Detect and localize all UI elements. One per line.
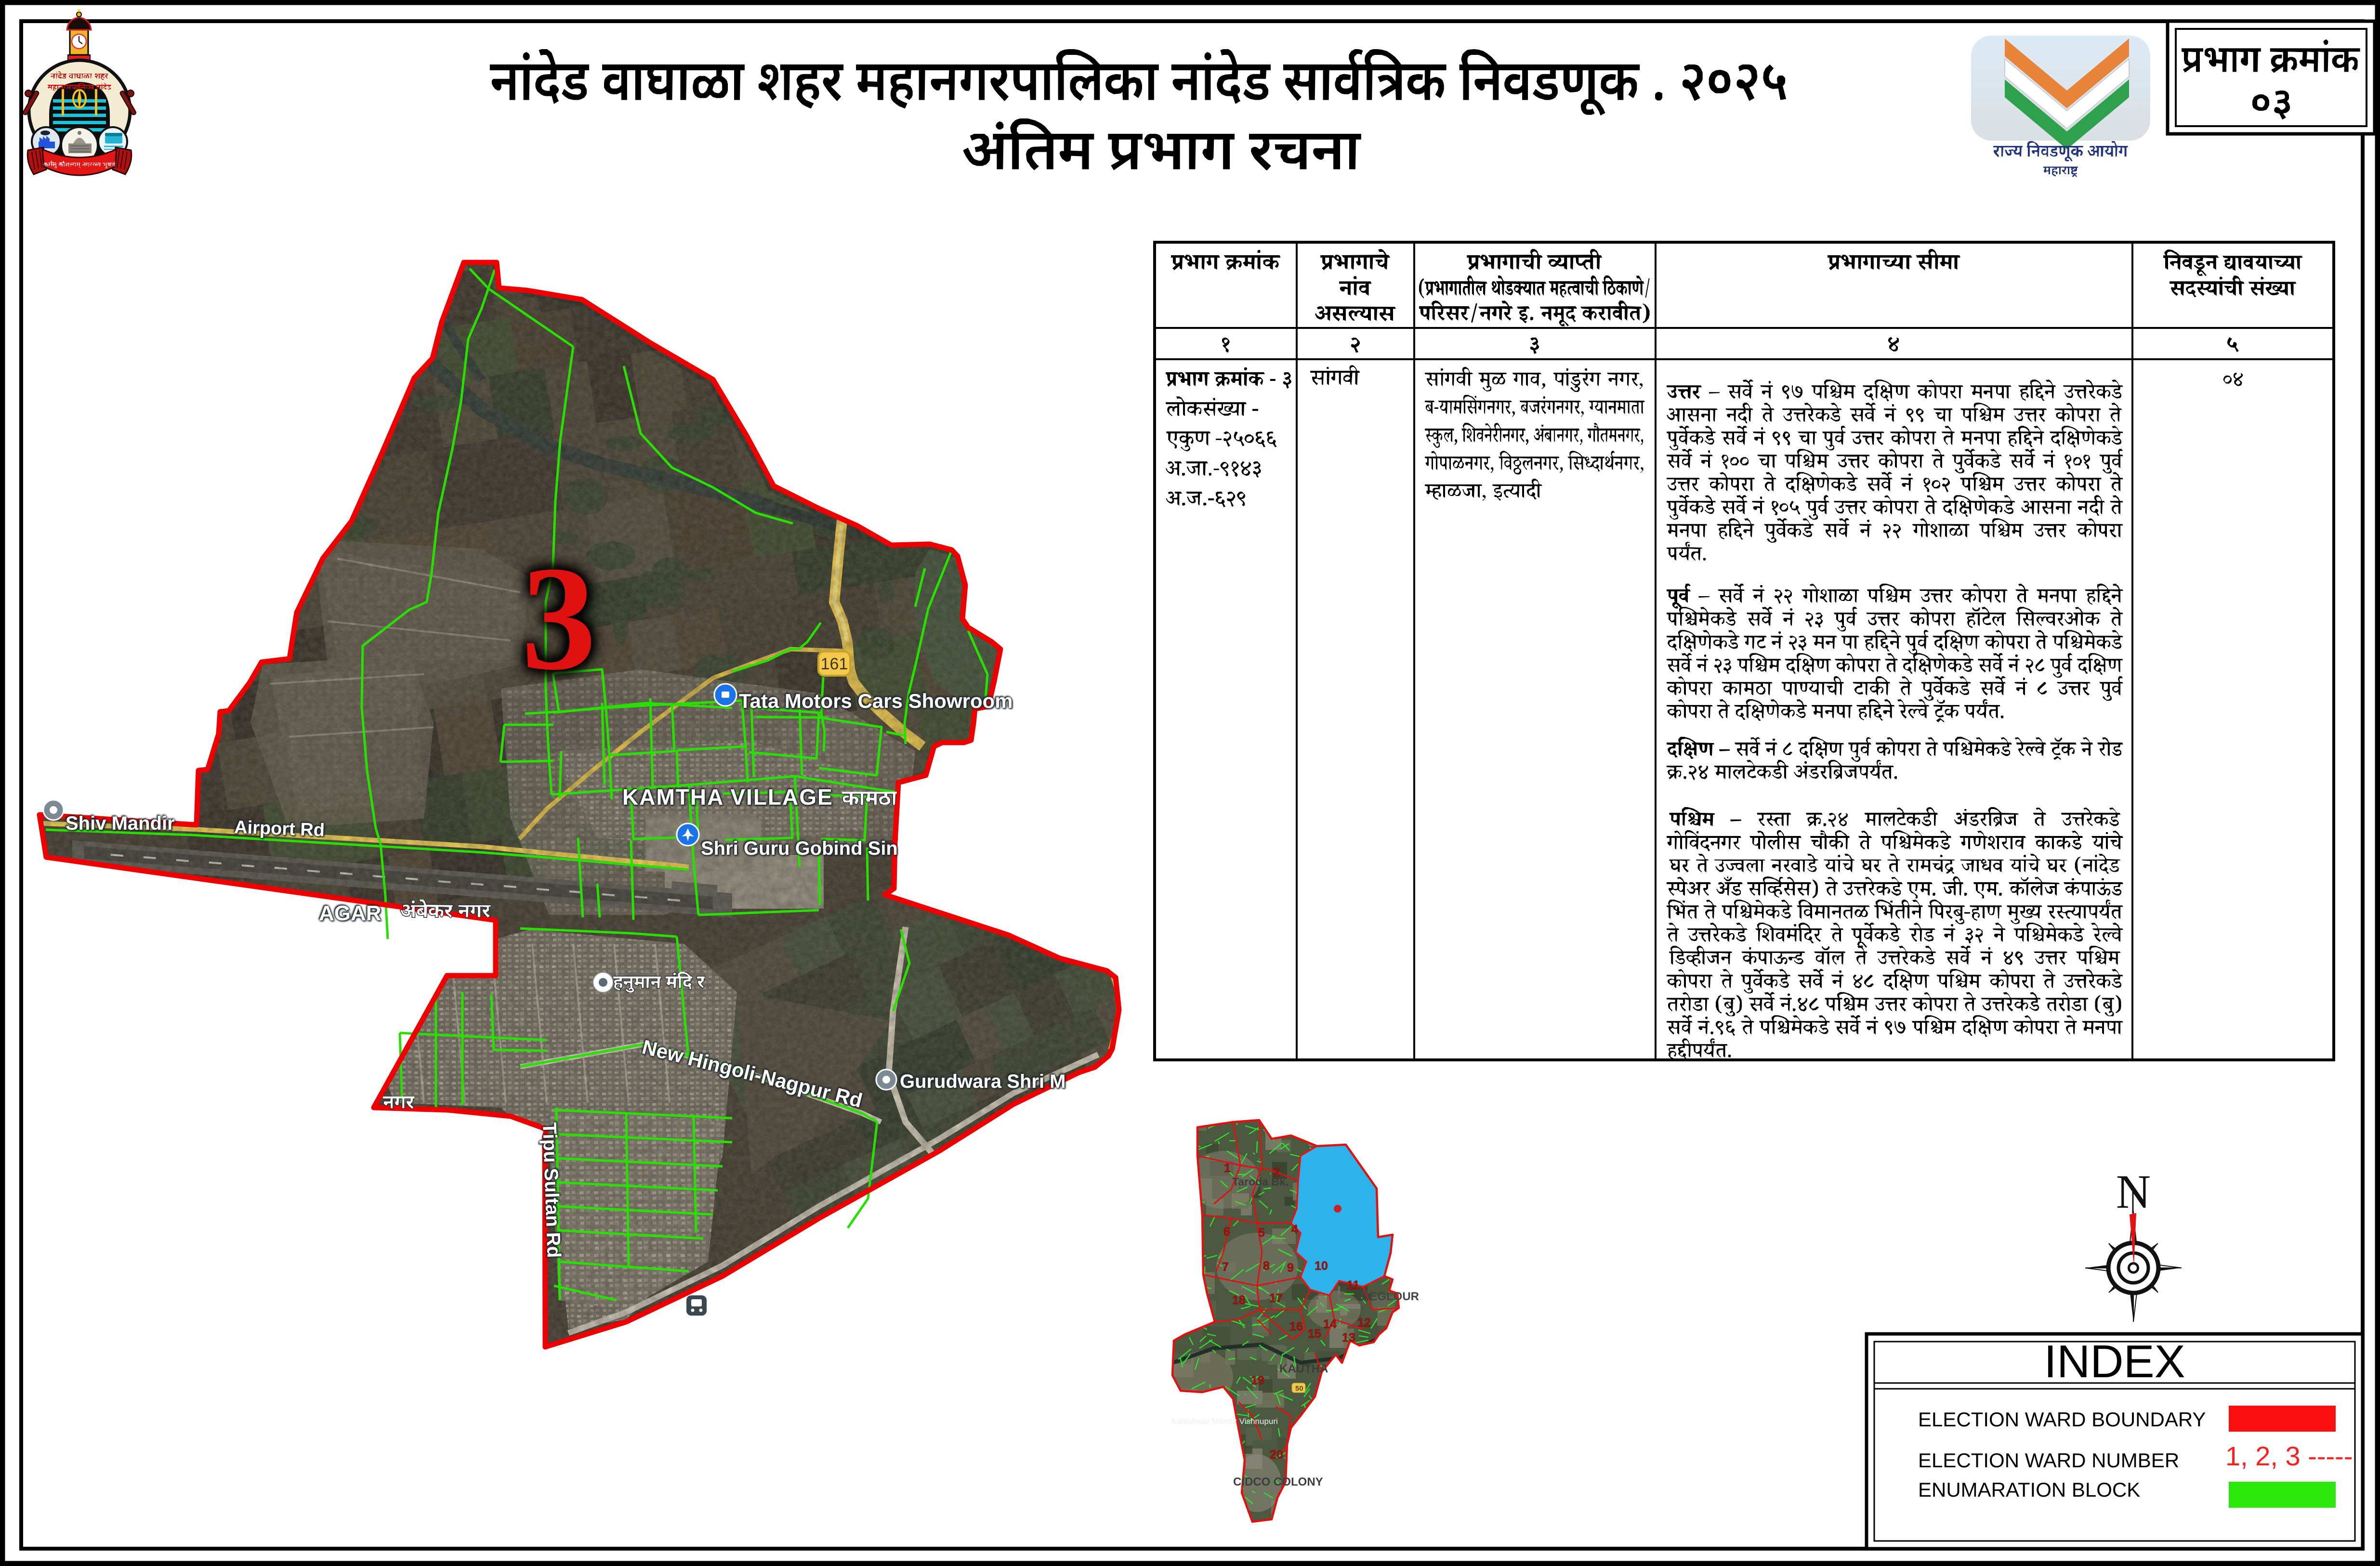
svg-text:DEGLOUR: DEGLOUR (1361, 1290, 1419, 1303)
svg-text:1, 2, 3 -----: 1, 2, 3 ----- (2225, 1441, 2353, 1471)
svg-text:19: 19 (1251, 1374, 1264, 1387)
svg-text:17: 17 (1269, 1292, 1283, 1305)
svg-text:ELECTION WARD BOUNDARY: ELECTION WARD BOUNDARY (1918, 1408, 2206, 1431)
svg-text:13: 13 (1342, 1331, 1355, 1344)
svg-text:Taroda Bk.: Taroda Bk. (1232, 1175, 1289, 1188)
svg-text:14: 14 (1323, 1318, 1337, 1331)
svg-text:9: 9 (1287, 1261, 1294, 1275)
svg-text:7: 7 (1222, 1260, 1229, 1274)
svg-text:KAUTHA: KAUTHA (1279, 1362, 1328, 1375)
svg-text:Kaleshwar Mandir Vishnupuri: Kaleshwar Mandir Vishnupuri (1171, 1417, 1278, 1426)
svg-text:12: 12 (1357, 1316, 1371, 1330)
svg-text:CIDCO COLONY: CIDCO COLONY (1233, 1475, 1323, 1488)
svg-text:ENUMARATION BLOCK: ENUMARATION BLOCK (1918, 1478, 2140, 1501)
svg-text:ELECTION WARD NUMBER: ELECTION WARD NUMBER (1918, 1449, 2179, 1472)
svg-text:16: 16 (1289, 1320, 1303, 1333)
svg-text:INDEX: INDEX (2044, 1336, 2185, 1387)
svg-text:11: 11 (1347, 1279, 1360, 1292)
svg-text:1: 1 (1224, 1161, 1231, 1175)
svg-text:161: 161 (821, 655, 848, 673)
svg-text:50: 50 (1295, 1384, 1303, 1393)
svg-text:6: 6 (1223, 1225, 1230, 1239)
svg-text:18: 18 (1232, 1293, 1246, 1307)
svg-text:10: 10 (1315, 1259, 1328, 1273)
svg-text:15: 15 (1308, 1327, 1321, 1341)
svg-text:4: 4 (1291, 1223, 1298, 1236)
svg-text:N: N (2116, 1165, 2151, 1218)
svg-text:20: 20 (1270, 1448, 1283, 1462)
svg-text:5: 5 (1258, 1226, 1265, 1240)
svg-text:2: 2 (1273, 1166, 1280, 1179)
svg-text:8: 8 (1263, 1259, 1270, 1273)
